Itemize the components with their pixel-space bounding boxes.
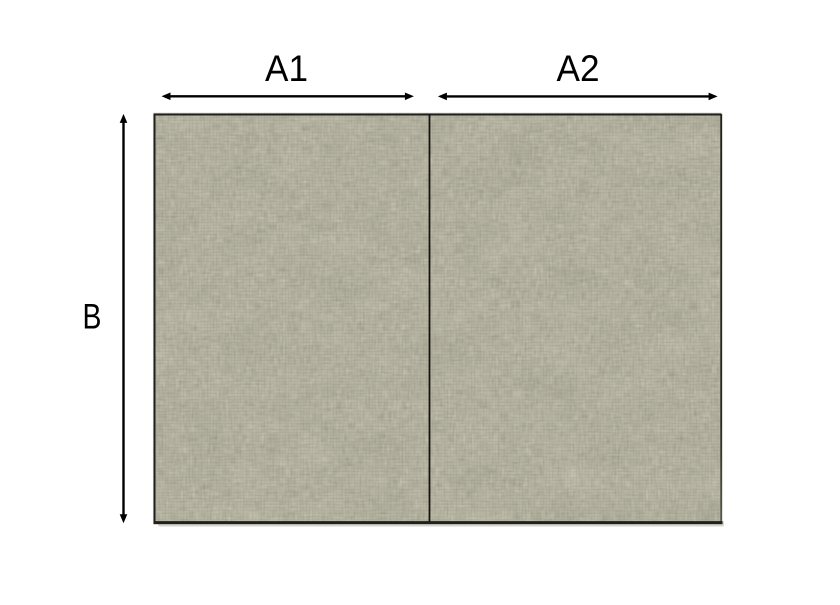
svg-text:A2: A2	[557, 47, 600, 89]
svg-text:B: B	[83, 296, 102, 336]
svg-text:A1: A1	[265, 47, 308, 89]
